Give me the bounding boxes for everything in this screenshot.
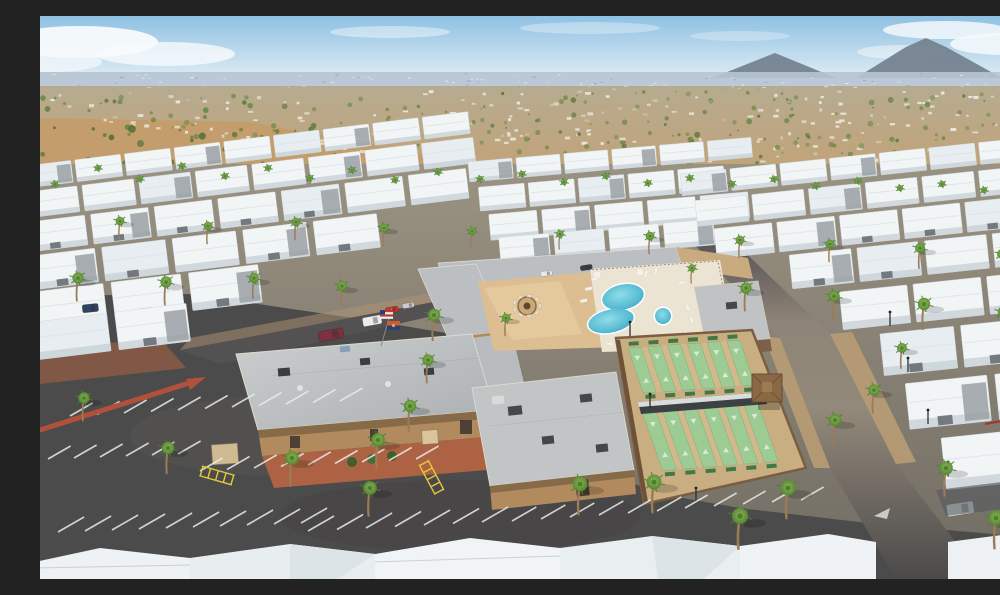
distant-building: [600, 82, 604, 83]
distant-tree: [622, 143, 627, 148]
palm-crown-center: [872, 388, 876, 392]
distant-building: [781, 82, 784, 83]
distant-house: [842, 139, 847, 141]
distant-house: [941, 92, 944, 95]
distant-tree: [118, 100, 123, 105]
distant-tree: [563, 95, 568, 100]
palm-crown-center: [983, 189, 985, 191]
palm-crown-center: [479, 178, 481, 180]
rooftop-ac-unit: [580, 393, 593, 402]
distant-tree: [100, 102, 102, 104]
distant-tree: [835, 112, 838, 115]
distant-building: [731, 77, 734, 78]
mobile-home: [611, 146, 657, 170]
distant-tree: [591, 92, 594, 95]
distant-house: [423, 93, 428, 95]
distant-tree: [797, 137, 799, 139]
distant-building: [357, 77, 359, 78]
distant-house: [403, 111, 408, 113]
distant-tree: [930, 95, 936, 101]
palm-crown-center: [731, 183, 733, 185]
distant-house: [109, 121, 113, 123]
palm-crown-center: [437, 171, 439, 173]
mobile-home: [752, 189, 806, 220]
distant-tree: [686, 133, 690, 137]
palm-crown-center: [267, 167, 269, 169]
home-carport: [642, 149, 657, 166]
distant-house: [483, 93, 486, 96]
home-carport: [832, 254, 853, 283]
flag-stripe: [380, 314, 393, 316]
distant-house: [521, 93, 524, 95]
desert-shrub: [190, 139, 193, 142]
distant-building: [114, 83, 117, 84]
distant-building: [594, 83, 597, 84]
distant-tree: [965, 126, 970, 131]
distant-tree: [203, 115, 207, 119]
distant-house: [632, 108, 637, 111]
distant-building: [558, 74, 561, 75]
distant-building: [78, 85, 81, 86]
distant-house: [776, 156, 779, 158]
distant-tree: [962, 94, 965, 97]
home-carport: [354, 127, 370, 146]
distant-tree: [232, 132, 237, 137]
distant-house: [758, 109, 763, 112]
distant-tree: [703, 110, 707, 114]
distant-house: [144, 124, 149, 127]
distant-house: [429, 90, 434, 93]
distant-tree: [889, 137, 894, 142]
light-post-head: [889, 311, 892, 314]
court-bench: [746, 465, 756, 470]
distant-house: [788, 132, 791, 135]
mobile-home: [857, 241, 922, 281]
distant-building: [452, 82, 454, 83]
distant-tree: [869, 100, 875, 106]
distant-tree: [559, 130, 563, 134]
distant-tree: [118, 95, 123, 100]
palm-crown-center: [941, 183, 943, 185]
rooftop-ac-unit: [542, 435, 555, 444]
distant-house: [877, 123, 880, 125]
home-front-window: [937, 415, 953, 426]
distant-tree: [687, 137, 693, 143]
palm-crown-center: [368, 486, 372, 490]
palm-crown-center: [426, 358, 430, 362]
distant-house: [253, 119, 258, 121]
mobile-home: [922, 171, 976, 202]
home-carport: [286, 227, 308, 256]
distant-house: [520, 135, 523, 137]
distant-tree: [150, 111, 153, 114]
distant-tree: [992, 123, 995, 126]
mobile-home: [929, 143, 977, 170]
distant-house: [884, 116, 887, 119]
distant-house: [298, 117, 302, 120]
palm-crown-center: [563, 181, 565, 183]
distant-house: [225, 132, 228, 134]
distant-tree: [665, 116, 669, 120]
distant-house: [300, 120, 305, 122]
distant-tree: [786, 98, 788, 100]
mobile-home: [865, 177, 919, 208]
distant-tree: [895, 139, 899, 143]
distant-tree: [184, 120, 190, 126]
palm-crown-center: [737, 513, 742, 518]
distant-house: [567, 117, 572, 120]
palm-crown-center: [786, 486, 791, 491]
distant-tree: [614, 135, 619, 140]
distant-building: [480, 79, 484, 80]
distant-tree: [483, 105, 486, 108]
home-front-window: [50, 242, 61, 249]
desert-shrub: [137, 140, 144, 147]
distant-building: [705, 78, 708, 79]
distant-tree: [763, 138, 766, 141]
distant-building: [445, 81, 448, 82]
flag-stripe: [380, 317, 393, 319]
distant-building: [467, 80, 471, 81]
distant-tree: [704, 90, 707, 93]
distant-building: [335, 74, 338, 75]
car-windshield: [91, 305, 96, 311]
palm-crown-center: [857, 180, 859, 182]
home-carport: [711, 173, 727, 192]
distant-house: [203, 100, 207, 102]
mobile-home: [902, 203, 963, 239]
distant-tree: [417, 144, 420, 147]
car-windshield: [587, 265, 591, 269]
distant-house: [501, 134, 504, 137]
distant-building: [873, 83, 875, 84]
distant-tree: [675, 91, 677, 93]
distant-tree: [63, 102, 66, 105]
distant-building: [733, 79, 736, 80]
distant-house: [581, 115, 585, 117]
distant-house: [587, 133, 591, 135]
distant-building: [120, 77, 124, 78]
distant-tree: [239, 128, 243, 132]
distant-house: [647, 104, 651, 106]
distant-building: [195, 78, 197, 79]
distant-house: [226, 101, 230, 104]
distant-tree: [805, 143, 809, 147]
distant-tree: [746, 91, 750, 95]
palm-crown-center: [408, 404, 412, 408]
distant-tree: [103, 133, 107, 137]
distant-house: [620, 138, 626, 141]
home-carport: [961, 382, 989, 421]
mobile-home: [839, 285, 911, 330]
court-bench: [665, 393, 675, 398]
distant-building: [547, 82, 549, 83]
palm-crown-center: [521, 173, 523, 175]
palm-crown-center: [82, 396, 86, 400]
distant-building: [331, 82, 334, 83]
distant-house: [848, 122, 851, 124]
distant-building: [845, 83, 849, 84]
home-front-window: [268, 252, 280, 260]
distant-house: [672, 111, 677, 113]
distant-house: [928, 99, 931, 101]
distant-tree: [517, 149, 522, 154]
distant-house: [757, 140, 760, 142]
distant-house: [633, 141, 637, 143]
distant-tree: [190, 136, 193, 139]
mobile-home: [829, 154, 877, 181]
distant-house: [360, 150, 365, 153]
palm-crown-center: [76, 276, 80, 280]
us-flag: [380, 310, 393, 319]
distant-building: [960, 75, 963, 76]
distant-house: [89, 104, 94, 107]
distant-house: [776, 109, 779, 112]
distant-tree: [294, 130, 296, 132]
home-carport: [609, 178, 624, 198]
distant-house: [840, 113, 846, 115]
distant-building: [897, 81, 901, 82]
distant-tree: [605, 121, 609, 125]
palm-crown-center: [252, 276, 255, 279]
arizona-flag: [387, 321, 400, 330]
palm-crown-center: [295, 221, 298, 224]
home-front-window: [990, 354, 1000, 364]
distant-house: [689, 112, 694, 115]
distant-building: [518, 81, 520, 82]
aerial-photo-canvas: [40, 16, 1000, 579]
court-bench: [688, 337, 698, 342]
distant-tree: [858, 143, 864, 149]
patio-chair: [527, 314, 532, 318]
distant-house: [185, 131, 188, 134]
palm-crown-center: [164, 280, 168, 284]
distant-tree: [480, 108, 482, 110]
distant-tree: [348, 103, 353, 108]
distant-house: [284, 101, 287, 103]
distant-building: [476, 78, 479, 79]
distant-house: [917, 102, 922, 104]
home-carport: [844, 187, 862, 209]
distant-house: [565, 137, 570, 140]
distant-building: [732, 86, 734, 87]
distant-building: [467, 84, 469, 85]
palm-crown-center: [471, 230, 473, 232]
distant-house: [837, 91, 841, 93]
distant-tree: [751, 106, 756, 111]
distant-house: [653, 99, 658, 102]
distant-tree: [746, 118, 752, 124]
distant-tree: [789, 114, 793, 118]
mobile-home: [578, 174, 626, 202]
roof-hvac-box: [492, 395, 505, 404]
palm-crown-center: [309, 177, 311, 179]
car-windshield: [332, 330, 339, 338]
distant-house: [821, 96, 824, 98]
car-body: [82, 303, 99, 313]
distant-building: [288, 87, 290, 88]
distant-tree: [694, 132, 700, 138]
distant-house: [222, 135, 225, 138]
distant-building: [518, 76, 520, 77]
rooftop-ac-unit: [424, 368, 435, 376]
distant-tree: [272, 129, 275, 132]
distant-tree: [480, 118, 484, 122]
distant-house: [156, 127, 160, 129]
palm-crown-center: [383, 227, 386, 230]
home-front-window: [987, 222, 998, 229]
distant-tree: [112, 99, 116, 103]
distant-house: [585, 92, 591, 95]
palm-crown-center: [691, 267, 693, 269]
distant-house: [930, 105, 934, 107]
light-post-head: [927, 409, 930, 412]
distant-building: [906, 85, 909, 86]
distant-house: [819, 108, 822, 111]
distant-building: [591, 84, 593, 85]
distant-house: [226, 107, 229, 110]
distant-house: [643, 113, 648, 115]
distant-tree: [445, 110, 448, 113]
flag-star: [392, 324, 395, 327]
distant-building: [362, 76, 365, 77]
distant-tree: [672, 135, 674, 137]
distant-tree: [417, 105, 420, 108]
activity-building: [472, 372, 636, 510]
distant-tree: [872, 107, 874, 109]
mobile-home: [564, 150, 610, 174]
distant-tree: [200, 97, 202, 99]
court-bench: [726, 467, 736, 472]
distant-building: [52, 74, 56, 75]
distant-house: [304, 112, 309, 114]
distant-tree: [387, 115, 391, 119]
distant-tree: [648, 131, 652, 135]
distant-tree: [781, 92, 783, 94]
distant-house: [525, 133, 529, 135]
mobile-home: [680, 169, 728, 196]
mobile-home: [659, 141, 705, 165]
distant-building: [298, 75, 301, 76]
distant-house: [517, 102, 520, 105]
palm-crown-center: [900, 346, 903, 349]
distant-tree: [182, 125, 186, 129]
distant-tree: [584, 144, 589, 149]
distant-building: [302, 86, 305, 87]
palm-crown-center: [432, 313, 436, 317]
distant-tree: [559, 99, 564, 104]
distant-house: [870, 114, 873, 116]
distant-building: [142, 78, 145, 79]
cloud: [690, 31, 790, 41]
distant-house: [507, 132, 511, 134]
distant-house: [972, 132, 978, 134]
court-bench: [724, 389, 734, 394]
gazebo-peak: [762, 382, 772, 392]
palm-crown-center: [922, 302, 926, 306]
home-front-window: [177, 226, 188, 233]
distant-tree: [686, 91, 691, 96]
pool-lounger: [606, 342, 613, 346]
distant-building: [323, 82, 326, 83]
palm-crown-center: [290, 456, 294, 460]
distant-house: [550, 104, 555, 106]
mobile-home: [789, 249, 854, 289]
distant-building: [764, 82, 767, 83]
distant-house: [169, 95, 174, 98]
distant-house: [575, 128, 580, 130]
distant-tree: [536, 118, 540, 122]
distant-house: [514, 129, 518, 132]
patio-umbrella: [636, 268, 644, 276]
car-windshield: [409, 303, 413, 307]
distant-building: [985, 84, 988, 85]
palm-crown-center: [340, 284, 343, 287]
palm-crown-center: [773, 178, 775, 180]
distant-house: [805, 97, 808, 100]
home-front-window: [240, 218, 251, 225]
distant-tree: [168, 113, 173, 118]
distant-building: [872, 81, 874, 82]
rooftop-ac-unit: [596, 443, 609, 452]
home-front-window: [338, 244, 350, 252]
distant-building: [742, 84, 744, 85]
mobile-home: [960, 318, 1000, 368]
distant-tree: [545, 146, 549, 150]
distant-house: [176, 100, 180, 103]
mobile-home: [880, 326, 958, 376]
distant-house: [968, 96, 972, 98]
distant-tree: [571, 112, 576, 117]
distant-house: [586, 130, 589, 132]
distant-house: [577, 91, 582, 93]
spa-hot-tub: [655, 308, 671, 324]
home-front-window: [56, 278, 68, 286]
distant-house: [113, 116, 117, 118]
distant-building: [408, 78, 411, 79]
distant-tree: [191, 123, 195, 127]
distant-house: [210, 128, 213, 131]
home-carport: [498, 161, 513, 178]
distant-tree: [340, 122, 343, 125]
distant-house: [797, 145, 800, 148]
home-carport: [321, 189, 341, 215]
light-post-head: [695, 487, 698, 490]
palm-crown-center: [739, 239, 742, 242]
home-front-window: [127, 269, 139, 277]
distant-house: [748, 115, 754, 117]
palm-crown-center: [119, 220, 122, 223]
distant-house: [186, 99, 189, 101]
distant-house: [935, 95, 938, 97]
distant-tree: [981, 124, 984, 127]
distant-building: [610, 79, 612, 80]
distant-tree: [980, 92, 984, 96]
distant-tree: [282, 104, 288, 110]
court-bench: [766, 464, 776, 469]
flag-canton: [380, 310, 385, 314]
distant-house: [973, 96, 978, 99]
palm-crown-center: [97, 167, 99, 169]
distant-house: [510, 138, 516, 141]
distant-building: [367, 77, 370, 78]
distant-house: [838, 103, 842, 106]
distant-building: [223, 78, 226, 79]
distant-house: [666, 106, 669, 108]
rooftop-ac-unit: [508, 405, 523, 415]
distant-building: [580, 85, 583, 86]
patio-chair: [539, 304, 542, 309]
